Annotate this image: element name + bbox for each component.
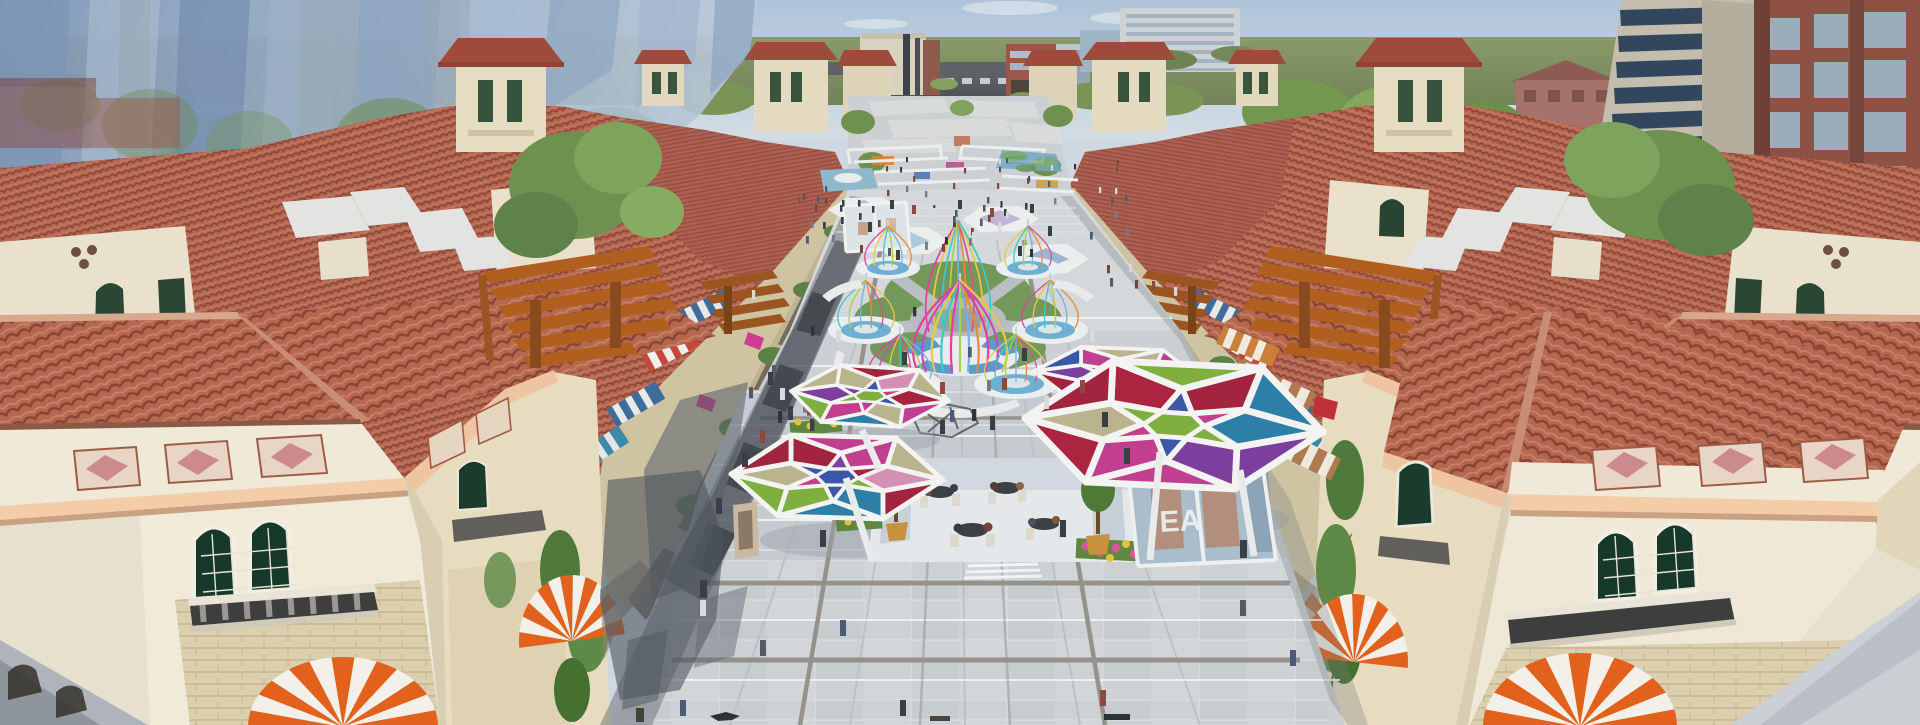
svg-text:EA: EA [1159,504,1202,539]
